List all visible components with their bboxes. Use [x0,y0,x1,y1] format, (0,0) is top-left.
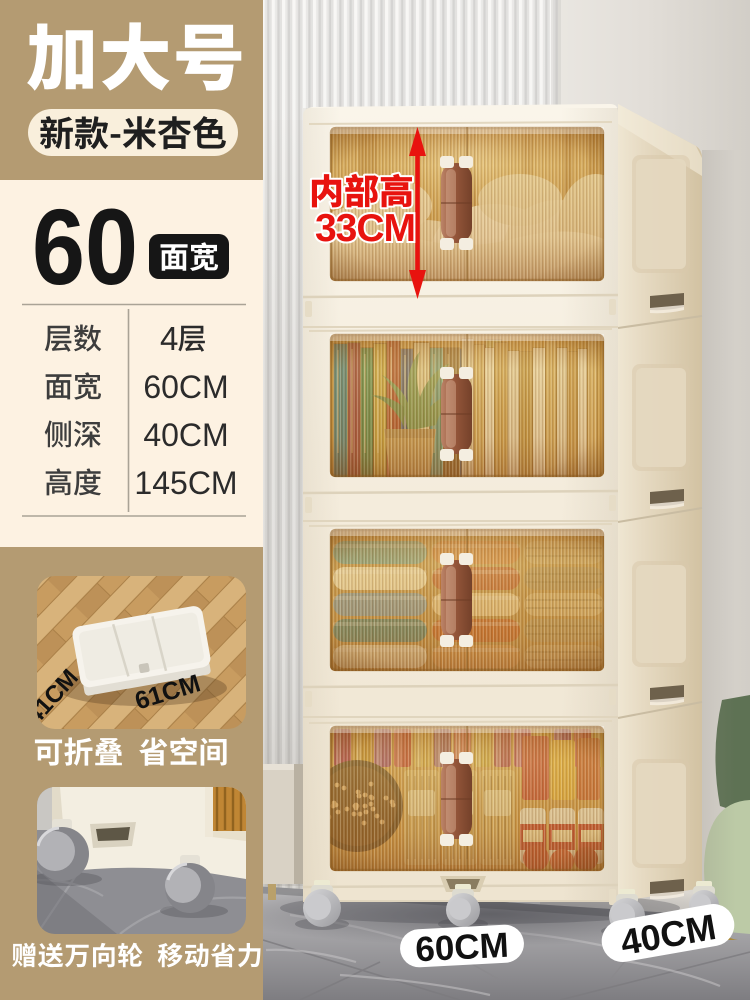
svg-text:60CM: 60CM [143,369,228,405]
svg-text:60CM: 60CM [414,926,509,970]
svg-text:145CM: 145CM [134,465,237,501]
svg-text:33CM: 33CM [315,207,415,250]
svg-text:60: 60 [32,186,138,307]
svg-text:4: 4 [160,320,178,357]
svg-text:40CM: 40CM [143,417,228,453]
